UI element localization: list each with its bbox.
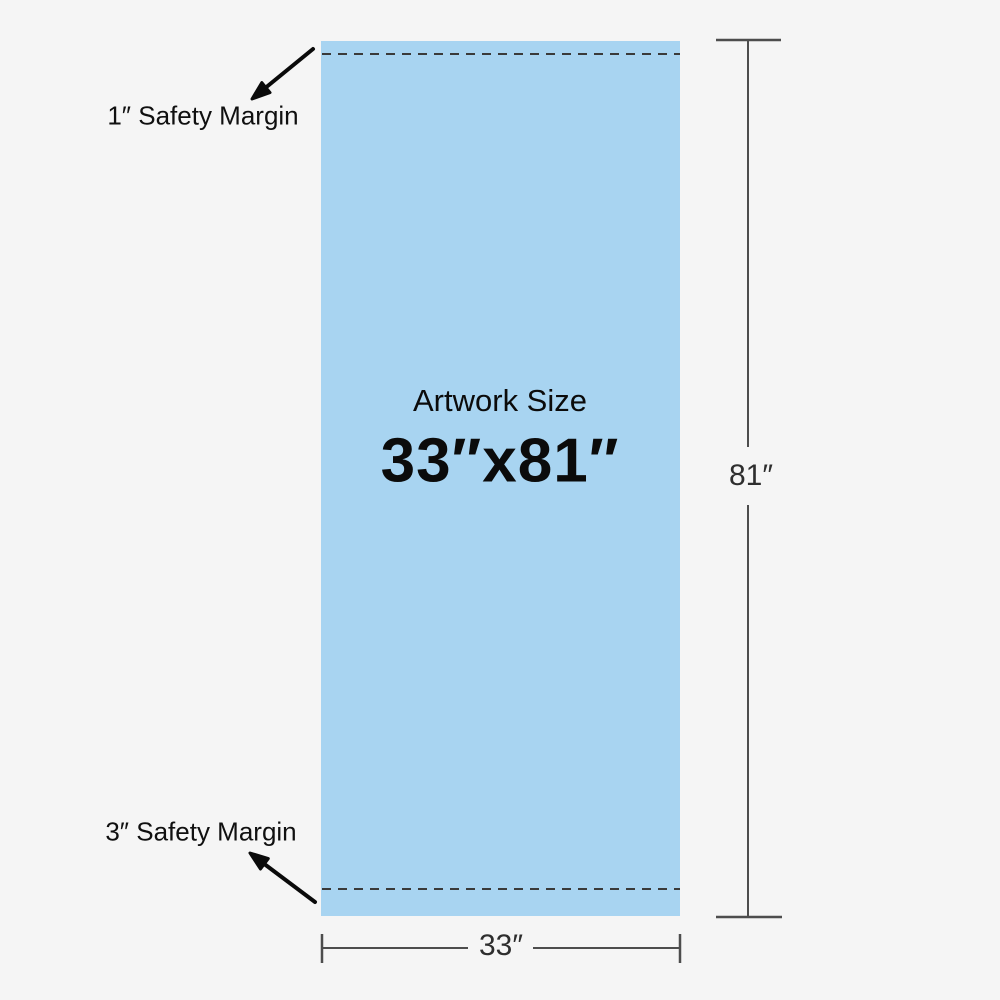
height-dimension-label: 81″ [729, 459, 773, 493]
width-dimension-label: 33″ [479, 929, 523, 963]
top-margin-arrow [252, 49, 313, 99]
artwork-size-title: Artwork Size [413, 383, 587, 419]
diagram-canvas: 1″ Safety Margin 3″ Safety Margin Artwor… [0, 0, 1000, 1000]
bottom-margin-arrow-shaft [263, 863, 315, 902]
diagram-lines [0, 0, 1000, 1000]
top-margin-arrow-shaft [264, 49, 313, 89]
top-safety-margin-label: 1″ Safety Margin [107, 101, 298, 132]
bottom-margin-arrow [250, 853, 315, 902]
artwork-size-value: 33″x81″ [381, 426, 620, 497]
bottom-safety-margin-label: 3″ Safety Margin [105, 817, 296, 848]
